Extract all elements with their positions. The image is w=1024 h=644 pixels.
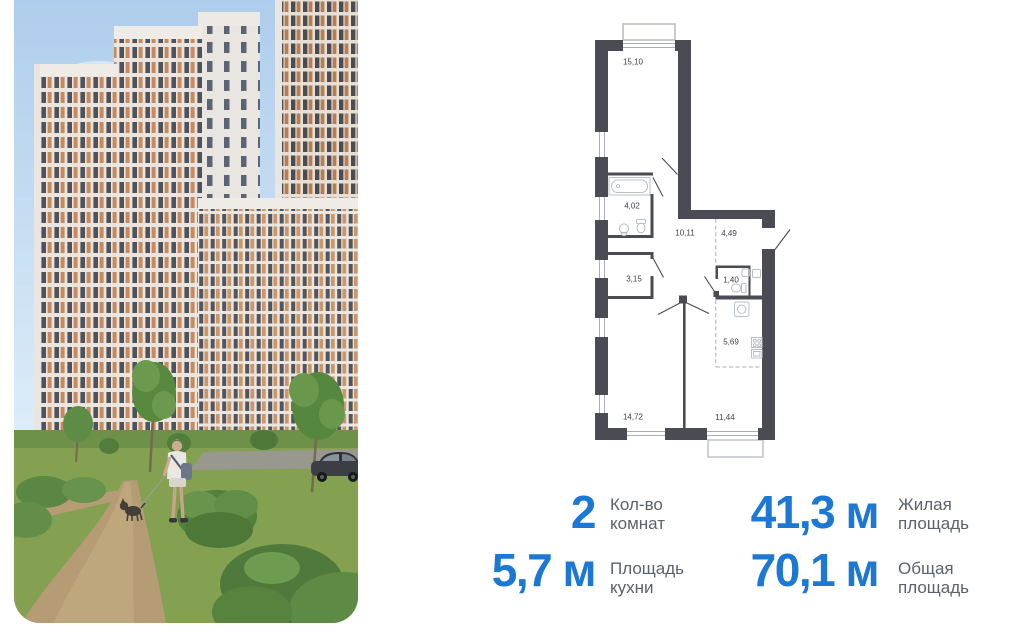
- rooms-count-value: 2: [571, 488, 595, 536]
- wc-sink: [742, 269, 750, 277]
- living-area-label: Жилая площадь: [898, 495, 969, 533]
- room-area-label: 4,02: [624, 202, 640, 211]
- wc-toilet: [742, 284, 747, 293]
- rooms-count-label-line2: комнат: [610, 514, 665, 533]
- person-head: [172, 441, 182, 451]
- room-area-label: 1,40: [723, 276, 739, 285]
- living-area-value: 41,3 м: [751, 488, 878, 536]
- floor-plan-drawing: 15,10 4,02 10,11 4,49 3,15 1,40 5,69 14,…: [588, 12, 798, 462]
- total-area-value: 70,1 м: [751, 546, 878, 594]
- room-area-label: 4,49: [721, 229, 737, 238]
- room-area-label: 3,15: [626, 275, 642, 284]
- kitchen-area-label-line1: Площадь: [610, 559, 684, 578]
- rooms-count-label: Кол-во комнат: [610, 495, 665, 533]
- living-area-label-line1: Жилая: [898, 495, 969, 514]
- floor-plan[interactable]: 15,10 4,02 10,11 4,49 3,15 1,40 5,69 14,…: [588, 12, 798, 462]
- kitchen-area-value: 5,7 м: [492, 546, 595, 594]
- room-area-label: 5,69: [723, 338, 739, 347]
- listing-photo[interactable]: [14, 0, 358, 623]
- balcony-bottom: [708, 440, 763, 457]
- listing-media-block: 15,10 4,02 10,11 4,49 3,15 1,40 5,69 14,…: [0, 0, 1024, 644]
- room-area-label: 10,11: [675, 229, 695, 238]
- balcony-top: [623, 24, 675, 40]
- room-area-label: 14,72: [623, 413, 644, 422]
- photo-scene: [14, 0, 358, 623]
- room-area-label: 15,10: [623, 58, 644, 67]
- total-area-label-line1: Общая: [898, 559, 969, 578]
- kitchen-area-label-line2: кухни: [610, 578, 684, 597]
- total-area-label-line2: площадь: [898, 578, 969, 597]
- room-area-label: 11,44: [715, 413, 735, 422]
- washing-machine: [735, 302, 750, 317]
- bag: [181, 463, 192, 480]
- kitchen-area-label: Площадь кухни: [610, 559, 684, 597]
- living-area-label-line2: площадь: [898, 514, 969, 533]
- sink: [619, 224, 628, 233]
- total-area-label: Общая площадь: [898, 559, 969, 597]
- rooms-count-label-line1: Кол-во: [610, 495, 665, 514]
